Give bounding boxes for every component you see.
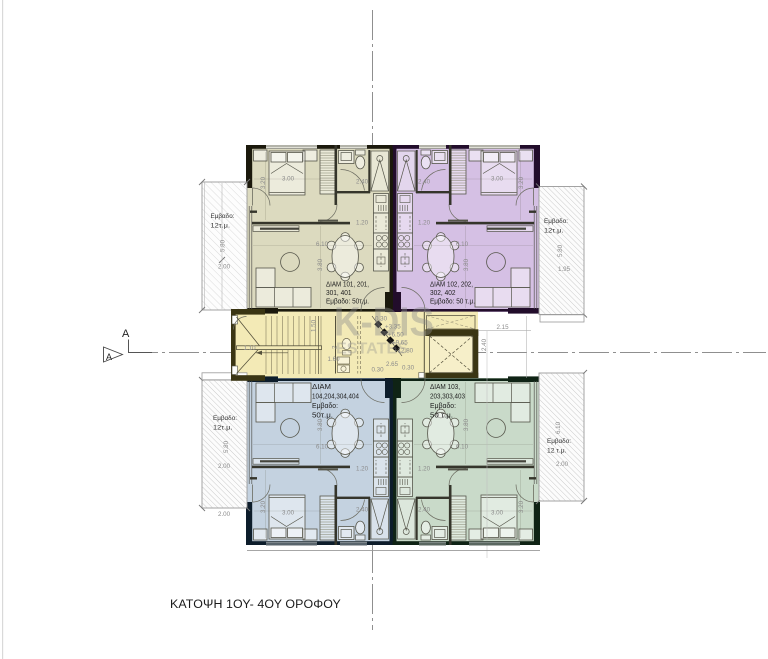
svg-text:2.40: 2.40	[481, 338, 488, 351]
svg-text:3.80: 3.80	[463, 418, 470, 431]
svg-text:2.00: 2.00	[218, 264, 231, 271]
svg-text:5.80: 5.80	[223, 440, 230, 453]
svg-text:1.20: 1.20	[418, 220, 431, 227]
svg-text:0.30: 0.30	[402, 365, 415, 372]
svg-text:1.20: 1.20	[356, 466, 369, 473]
svg-text:A: A	[122, 328, 130, 340]
svg-text:12τ.μ.: 12τ.μ.	[544, 228, 564, 235]
svg-text:ΔΙΑΜ: ΔΙΑΜ	[312, 382, 331, 391]
svg-text:12τ.μ.: 12τ.μ.	[211, 223, 231, 230]
svg-text:3.80: 3.80	[317, 258, 324, 271]
svg-text:2.00: 2.00	[556, 461, 569, 468]
svg-text:3.20: 3.20	[260, 500, 267, 513]
svg-text:6.10: 6.10	[456, 241, 469, 248]
svg-text:Εμβαδο:: Εμβαδο:	[211, 213, 235, 220]
svg-text:50 τ.μ.: 50 τ.μ.	[430, 411, 453, 420]
svg-text:2.40: 2.40	[418, 179, 431, 186]
svg-text:ESTATES: ESTATES	[336, 341, 408, 358]
svg-text:Εμβαδο:: Εμβαδο:	[547, 438, 571, 445]
svg-text:3.00: 3.00	[282, 510, 295, 517]
svg-text:12τ.μ.: 12τ.μ.	[213, 425, 233, 432]
svg-text:6.10: 6.10	[456, 444, 469, 451]
svg-text:3.00: 3.00	[491, 510, 504, 517]
svg-text:2.40: 2.40	[356, 179, 369, 186]
svg-text:Εμβαδο:: Εμβαδο:	[430, 401, 456, 410]
svg-text:Εμβαδο: 50 τ.μ.: Εμβαδο: 50 τ.μ.	[430, 297, 475, 306]
svg-text:K-DIS: K-DIS	[334, 299, 434, 345]
svg-text:Εμβαδο:: Εμβαδο:	[544, 218, 568, 225]
svg-text:3.20: 3.20	[260, 176, 267, 189]
svg-text:3.00: 3.00	[282, 176, 295, 183]
svg-text:1.10: 1.10	[244, 345, 257, 352]
svg-text:2.40: 2.40	[356, 507, 369, 514]
svg-text:Εμβαδο:: Εμβαδο:	[213, 415, 237, 422]
svg-text:50τ.μ.: 50τ.μ.	[312, 411, 333, 420]
svg-text:5.80: 5.80	[220, 239, 227, 252]
svg-text:2.00: 2.00	[218, 511, 231, 518]
svg-text:6.10: 6.10	[316, 444, 329, 451]
svg-text:3.00: 3.00	[491, 176, 504, 183]
svg-text:5.80: 5.80	[557, 244, 564, 257]
svg-text:3.20: 3.20	[518, 176, 525, 189]
svg-text:ΔΙΑΜ 103,: ΔΙΑΜ 103,	[430, 382, 460, 391]
svg-text:3.20: 3.20	[518, 500, 525, 513]
svg-text:1.20: 1.20	[356, 220, 369, 227]
svg-text:A: A	[106, 352, 112, 362]
svg-text:2.15: 2.15	[497, 324, 510, 331]
svg-text:Εμβαδο:: Εμβαδο:	[312, 401, 338, 410]
svg-text:2.40: 2.40	[418, 507, 431, 514]
svg-text:3.80: 3.80	[463, 258, 470, 271]
svg-text:104,204,304,404: 104,204,304,404	[312, 392, 359, 401]
svg-text:ΚΑΤΟΨΗ 1ΟΥ- 4ΟΥ ΟΡΟΦΟΥ: ΚΑΤΟΨΗ 1ΟΥ- 4ΟΥ ΟΡΟΦΟΥ	[170, 597, 341, 611]
svg-text:6.10: 6.10	[555, 421, 562, 434]
svg-text:1.95: 1.95	[558, 266, 571, 273]
svg-text:1.20: 1.20	[418, 466, 431, 473]
svg-text:3.80: 3.80	[317, 418, 324, 431]
svg-text:12 τ.μ.: 12 τ.μ.	[547, 448, 567, 455]
svg-text:2.65: 2.65	[386, 361, 399, 368]
svg-text:0.30: 0.30	[372, 367, 385, 374]
svg-text:1.50: 1.50	[311, 319, 318, 332]
svg-text:203,303,403: 203,303,403	[430, 392, 465, 401]
svg-text:6.10: 6.10	[316, 241, 329, 248]
svg-text:2.00: 2.00	[218, 463, 231, 470]
